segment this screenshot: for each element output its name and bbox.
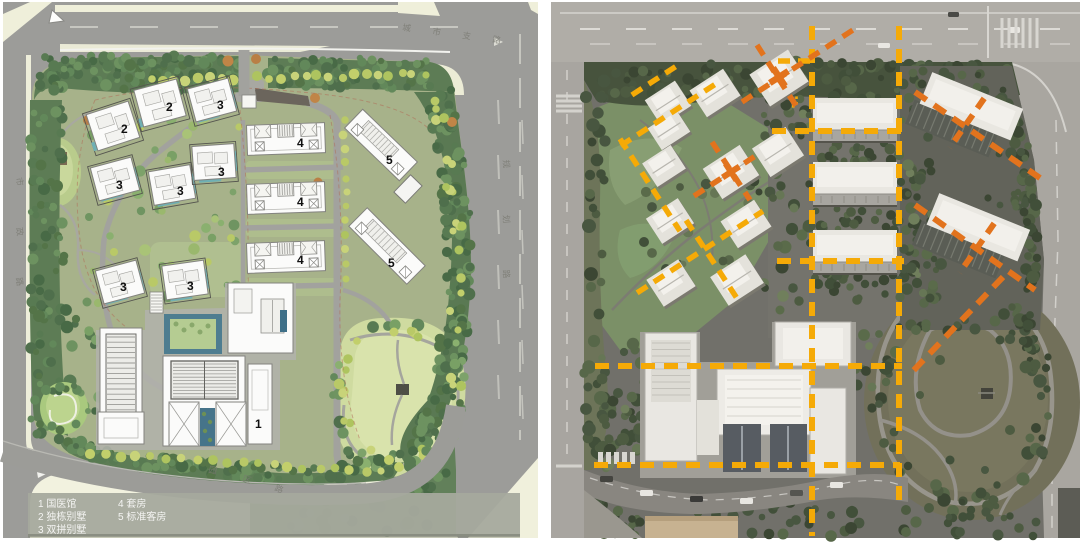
svg-text:2: 2: [166, 100, 173, 114]
svg-text:2 独栋别墅: 2 独栋别墅: [38, 510, 86, 523]
svg-text:5 标准客房: 5 标准客房: [118, 510, 166, 523]
svg-text:3 双拼别墅: 3 双拼别墅: [38, 523, 86, 536]
svg-text:3: 3: [187, 279, 194, 293]
svg-text:5: 5: [388, 256, 395, 270]
svg-text:3: 3: [218, 165, 225, 179]
svg-text:4: 4: [297, 253, 304, 267]
svg-text:划: 划: [501, 214, 512, 223]
svg-text:4 套房: 4 套房: [118, 497, 146, 510]
svg-text:3: 3: [120, 280, 127, 294]
svg-text:路: 路: [501, 269, 512, 279]
svg-text:2: 2: [121, 122, 128, 136]
svg-text:3: 3: [217, 98, 224, 112]
svg-text:3: 3: [177, 184, 184, 198]
svg-text:3: 3: [116, 178, 123, 192]
svg-text:1: 1: [255, 417, 262, 431]
svg-text:规: 规: [501, 159, 512, 169]
svg-text:4: 4: [297, 195, 304, 209]
svg-text:5: 5: [386, 153, 393, 167]
svg-text:1 国医馆: 1 国医馆: [38, 497, 76, 510]
svg-text:4: 4: [297, 136, 304, 150]
